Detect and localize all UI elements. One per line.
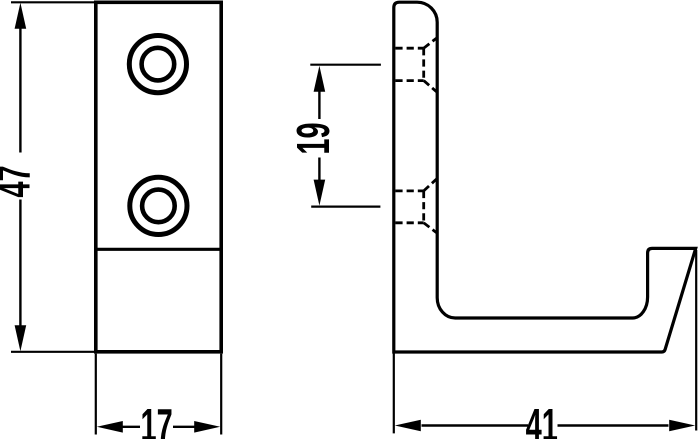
svg-text:17: 17 bbox=[140, 400, 172, 439]
svg-text:47: 47 bbox=[0, 165, 40, 197]
svg-text:19: 19 bbox=[288, 122, 339, 154]
svg-text:41: 41 bbox=[526, 400, 558, 439]
